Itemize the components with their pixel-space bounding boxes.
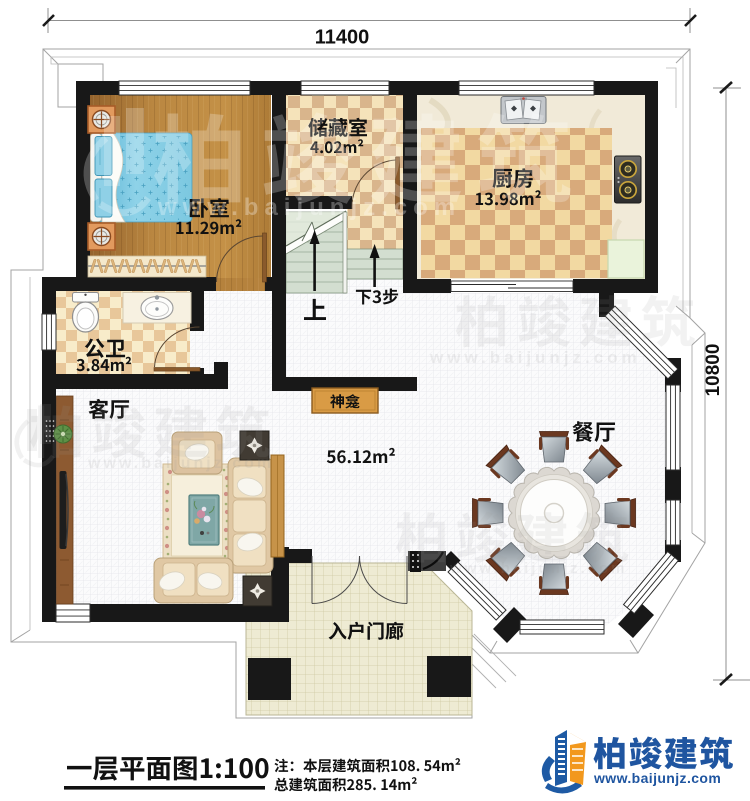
svg-text:www.baijunjz.com: www.baijunjz.com — [87, 455, 274, 472]
svg-text:www.baijunjz.com: www.baijunjz.com — [429, 348, 641, 367]
svg-text:www.baijunjz.com: www.baijunjz.com — [449, 560, 627, 577]
svg-text:www.baijunjz.com: www.baijunjz.com — [593, 770, 721, 786]
svg-text:10800: 10800 — [703, 344, 724, 397]
svg-text:www.baijunjz.com: www.baijunjz.com — [157, 194, 461, 221]
svg-text:11400: 11400 — [315, 27, 370, 49]
